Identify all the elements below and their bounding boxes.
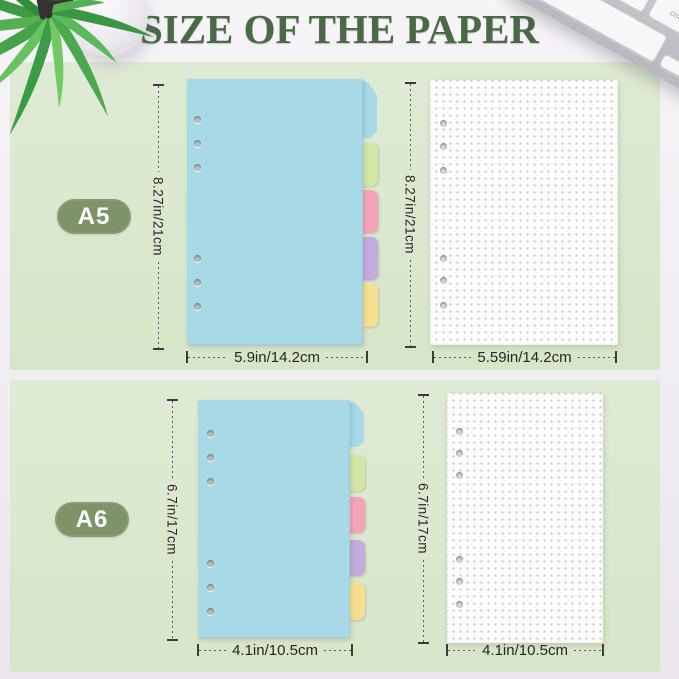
binder-hole [194,164,201,171]
dimension-line [423,560,424,642]
width-dimension-paper-a5: 5.59in/14.2cm [432,349,617,365]
arrow-left-icon: ◂ [659,54,679,93]
divider-tab-green [348,455,365,491]
dimension-line [326,357,366,358]
dimension-line [188,357,228,358]
dimension-line [324,650,351,651]
binder-hole [207,608,214,615]
divider-sheet-body [187,79,363,345]
width-label-divider-a6: 4.1in/10.5cm [226,642,324,659]
product-infographic: cmd ◂ ▴ ▾ ▸ [0,0,679,679]
width-dimension-divider-a6: 4.1in/10.5cm [197,642,353,658]
size-badge-a6-label: A6 [76,506,109,534]
dimension-cap [366,351,368,363]
binder-hole [194,279,201,286]
size-badge-a6: A6 [55,502,129,537]
binder-hole [440,255,447,262]
height-dimension-divider-a6: 6.7in/17cm [164,399,180,641]
dimension-cap [405,346,416,348]
divider-a5 [187,79,363,345]
divider-tab-pink [361,190,378,233]
binder-hole [440,277,447,284]
dimension-cap [351,644,353,656]
binder-hole [194,303,201,310]
binder-hole [207,430,214,437]
height-dimension-paper-a6: 6.7in/17cm [415,394,431,644]
height-dimension-paper-a5: 8.27in/21cm [402,82,418,348]
paper-a5 [430,80,618,345]
width-label-paper-a6: 4.1in/10.5cm [476,642,574,659]
binder-hole [440,143,447,150]
divider-tab-purple [348,540,365,576]
binder-hole [456,556,463,563]
height-label-divider-a6: 6.7in/17cm [165,479,180,560]
divider-tab-pink [348,497,365,533]
size-badge-a5-label: A5 [78,203,111,231]
divider-sheet-body [198,400,350,638]
height-label-divider-a5: 8.27in/21cm [151,172,166,261]
width-dimension-divider-a5: 5.9in/14.2cm [186,349,368,365]
paper-a6 [447,393,603,643]
dimension-cap [167,639,178,641]
binder-hole [456,450,463,457]
binder-hole [207,454,214,461]
binder-hole [456,428,463,435]
binder-hole [194,116,201,123]
dimension-line [448,650,476,651]
dimension-line [199,650,226,651]
binder-hole [440,302,447,309]
dimension-line [423,396,424,478]
divider-tab-purple [361,237,378,280]
dimension-line [172,401,173,479]
binder-hole [456,472,463,479]
width-label-divider-a5: 5.9in/14.2cm [228,349,326,366]
plant-image [0,0,170,164]
dimension-line [410,260,411,346]
dimension-line [578,357,615,358]
binder-hole [456,578,463,585]
size-badge-a5: A5 [57,199,131,234]
width-label-paper-a5: 5.59in/14.2cm [471,349,577,366]
dimension-cap [418,642,429,644]
dimension-cap [615,351,617,363]
dimension-line [172,561,173,639]
binder-hole [194,140,201,147]
binder-hole [207,560,214,567]
binder-hole [456,601,463,608]
dimension-cap [153,348,164,350]
divider-tab-yellow [361,284,378,327]
dimension-cap [602,644,604,656]
width-dimension-paper-a6: 4.1in/10.5cm [446,642,604,658]
binder-hole [207,584,214,591]
divider-tab-yellow [348,583,365,620]
divider-tab-green [361,143,378,186]
binder-hole [194,255,201,262]
height-label-paper-a6: 6.7in/17cm [416,478,431,559]
binder-hole [207,478,214,485]
binder-hole [440,167,447,174]
dimension-line [574,650,602,651]
divider-a6 [198,400,350,638]
dimension-line [410,84,411,170]
dimension-line [434,357,471,358]
binder-hole [440,120,447,127]
height-label-paper-a5: 8.27in/21cm [403,170,418,259]
dimension-line [158,262,159,348]
